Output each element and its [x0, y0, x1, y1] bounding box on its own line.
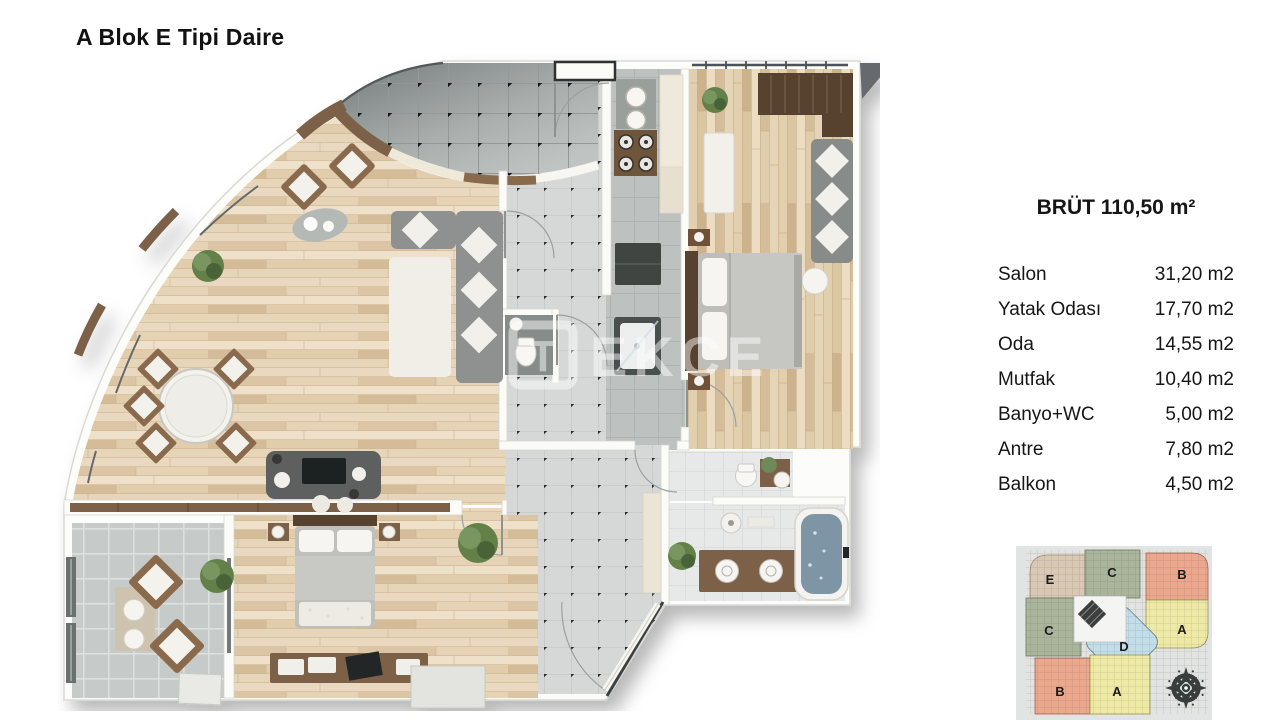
room-area: 17,70 m2 [1155, 299, 1234, 321]
terrace-door-frame [555, 62, 615, 80]
room-area: 10,40 m2 [1155, 369, 1234, 391]
bed [293, 515, 377, 628]
site-key-plan: E C B C A D B A [1016, 546, 1212, 720]
plant-icon [668, 542, 696, 570]
room-name: Salon [998, 264, 1047, 286]
room-table: Salon31,20 m2 Yatak Odası17,70 m2 Oda14,… [998, 264, 1234, 509]
room-area: 5,00 m2 [1165, 404, 1234, 426]
area-panel: BRÜT 110,50 m² Salon31,20 m2 Yatak Odası… [998, 196, 1234, 509]
page-title: A Blok E Tipi Daire [76, 24, 284, 51]
room-area: 7,80 m2 [1165, 439, 1234, 461]
room-name: Banyo+WC [998, 404, 1095, 426]
gross-area: BRÜT 110,50 m² [998, 196, 1234, 220]
sink [627, 111, 646, 130]
block-label: C [1044, 623, 1054, 638]
watermark: T EKCE [513, 325, 770, 388]
room-row: Balkon4,50 m2 [998, 474, 1234, 509]
side-table [802, 268, 828, 294]
block-label: D [1119, 639, 1128, 654]
block-label: B [1177, 567, 1186, 582]
counter [660, 167, 683, 213]
plant-icon [702, 87, 728, 113]
room-row: Oda14,55 m2 [998, 334, 1234, 369]
tall-cabinet [660, 75, 683, 167]
room-row: Banyo+WC5,00 m2 [998, 404, 1234, 439]
block-label: A [1112, 684, 1122, 699]
room-row: Salon31,20 m2 [998, 264, 1234, 299]
wardrobe [758, 73, 853, 115]
room-row: Yatak Odası17,70 m2 [998, 299, 1234, 334]
sink [626, 87, 646, 107]
corner-sofa [389, 211, 503, 383]
room-name: Balkon [998, 474, 1056, 496]
vanity [699, 550, 799, 592]
room-name: Mutfak [998, 369, 1055, 391]
room-name: Antre [998, 439, 1043, 461]
oda-window-sill [70, 503, 450, 512]
sink [760, 560, 783, 583]
hall-closet [643, 493, 661, 593]
block-label: C [1107, 565, 1117, 580]
room-area: 4,50 m2 [1165, 474, 1234, 496]
room-name: Yatak Odası [998, 299, 1101, 321]
desk [704, 133, 734, 213]
side-table [124, 600, 145, 621]
washbasin [774, 472, 790, 488]
watermark-logo: T [530, 332, 557, 381]
porch-box [411, 666, 485, 708]
plant-icon [200, 559, 234, 593]
watermark-text: EKCE [590, 325, 770, 388]
dresser [270, 651, 428, 683]
plant-icon [192, 250, 224, 282]
page: A Blok E Tipi Daire [0, 0, 1280, 720]
block-label: E [1046, 572, 1055, 587]
block-label: A [1177, 622, 1187, 637]
room-area: 31,20 m2 [1155, 264, 1234, 286]
room-row: Antre7,80 m2 [998, 439, 1234, 474]
room-row: Mutfak10,40 m2 [998, 369, 1234, 404]
floor-plan: T EKCE [58, 53, 880, 711]
side-table [124, 629, 144, 649]
floor-plan-svg: T EKCE [58, 53, 880, 711]
balcony-box [178, 673, 221, 704]
sink [716, 560, 739, 583]
plant-icon [458, 523, 498, 563]
room-name: Oda [998, 334, 1034, 356]
roof-shade [860, 63, 880, 99]
key-plan-svg: E C B C A D B A [1016, 546, 1212, 720]
room-area: 14,55 m2 [1155, 334, 1234, 356]
block-label: B [1055, 684, 1064, 699]
bathtub [795, 508, 849, 600]
